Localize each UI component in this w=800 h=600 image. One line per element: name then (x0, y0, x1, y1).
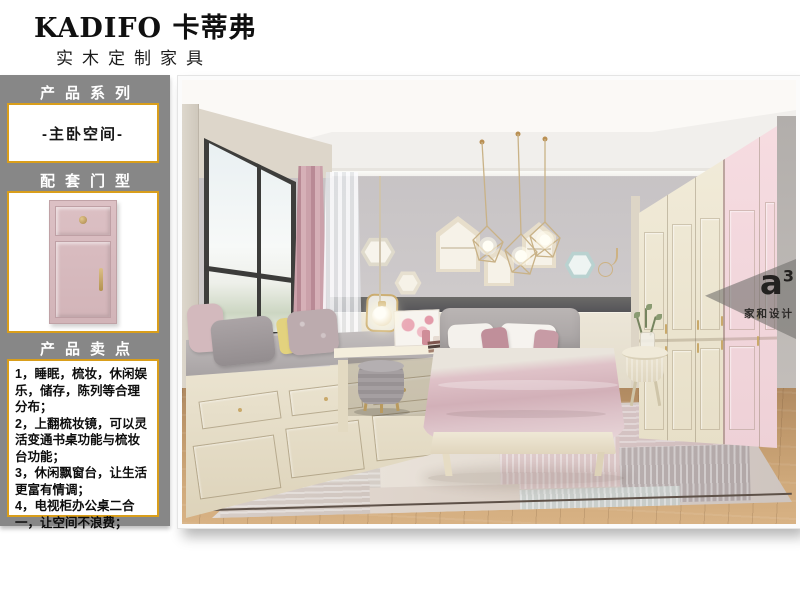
door-knob (79, 216, 87, 224)
bedroom-scene: a3 家和设计 (182, 80, 796, 524)
wardrobe-door-panel (672, 224, 692, 330)
door-type-label: 配套门型 (0, 170, 170, 191)
cabinet-door-graphic (49, 200, 117, 324)
cabinet-door (193, 435, 282, 500)
seat-pillow-patterned (286, 308, 340, 356)
side-table-top (622, 346, 668, 360)
door-handle (99, 268, 103, 291)
watermark-logo-letter: a (760, 263, 783, 303)
seat-pillow-gray (210, 315, 276, 367)
house-shelf-line (441, 247, 475, 249)
sidebar: 产品系列 -主卧空间- 配套门型 产品卖点 1，睡眠，梳妆，休闲娱乐，储存，陈列… (0, 75, 170, 526)
series-label: 产品系列 (0, 82, 170, 103)
bed-duvet (422, 348, 626, 438)
house-shelf-interior (440, 222, 476, 269)
pouf-top (358, 360, 404, 372)
wardrobe-handle (757, 336, 759, 346)
wardrobe-lower-panel (729, 346, 755, 430)
selling-points-label: 产品卖点 (0, 338, 170, 359)
plant-leaf (656, 314, 662, 320)
bedroom-render-photo: a3 家和设计 (178, 76, 800, 528)
wardrobe-door-gap (723, 126, 725, 448)
watermark-logo: a3 (730, 266, 794, 300)
wardrobe-lower-panel (700, 348, 720, 430)
selling-points-box: 1，睡眠，梳妆，休闲娱乐，储存，陈列等合理分布； 2，上翻梳妆镜，可以灵活变通书… (7, 359, 159, 517)
wardrobe-door-panel (700, 218, 720, 330)
plant-stem (645, 308, 647, 328)
pouf-leg (380, 404, 383, 413)
bed-frame (430, 432, 616, 454)
drawer-knob (324, 397, 328, 401)
duvet-fold-highlight (438, 380, 618, 390)
hexagon-shelf-interior (398, 274, 418, 292)
brand-subtitle: 实木定制家具 (56, 44, 212, 69)
house-shelf-interior (526, 228, 552, 265)
cabinet-drawer (198, 391, 281, 430)
hexagon-shelf-interior (364, 240, 392, 264)
window-mullion-vertical (257, 138, 261, 338)
series-value-box: -主卧空间- (7, 103, 159, 163)
door-type-box (7, 191, 159, 333)
wardrobe-handle (665, 324, 667, 334)
watermark-brand-name: 家和设计 (726, 306, 794, 321)
wardrobe-lower-panel (672, 350, 692, 430)
duvet-fold-shadow (446, 410, 606, 418)
drawer-knob (238, 408, 243, 413)
wardrobe-handle (697, 320, 699, 330)
wardrobe-handle (697, 343, 699, 353)
plant-leaf (646, 304, 652, 310)
house-shelf-line (527, 248, 551, 250)
watermark-logo-sup: 3 (783, 267, 794, 286)
door-drawer-front (55, 206, 111, 236)
wall-lamp-icon (598, 262, 613, 277)
cabinet-door (285, 420, 365, 479)
dresser-side-panel (338, 360, 348, 432)
selling-point-4: 4，电视柜办公桌二合一，让空间不浪费； (15, 498, 151, 531)
selling-point-3: 3，休闲飘窗台，让生活更富有情调； (15, 465, 151, 498)
hexagon-shelf-interior (568, 254, 592, 276)
pendant-bulb (372, 306, 392, 326)
house-shelf-interior (488, 254, 510, 283)
catalog-page: KADIFO 卡蒂弗 实木定制家具 产品系列 -主卧空间- 配套门型 产品卖点 … (0, 0, 800, 600)
brand-title: KADIFO 卡蒂弗 (34, 6, 256, 45)
selling-point-1: 1，睡眠，梳妆，休闲娱乐，储存，陈列等合理分布； (15, 366, 151, 416)
door-panel (55, 241, 111, 318)
pendant-cord (379, 176, 381, 308)
selling-point-2: 2，上翻梳妆镜，可以灵活变通书桌功能与梳妆台功能； (15, 416, 151, 466)
wardrobe-handle (721, 340, 723, 350)
plant-leaf (634, 312, 640, 318)
wardrobe-handle (721, 316, 723, 326)
